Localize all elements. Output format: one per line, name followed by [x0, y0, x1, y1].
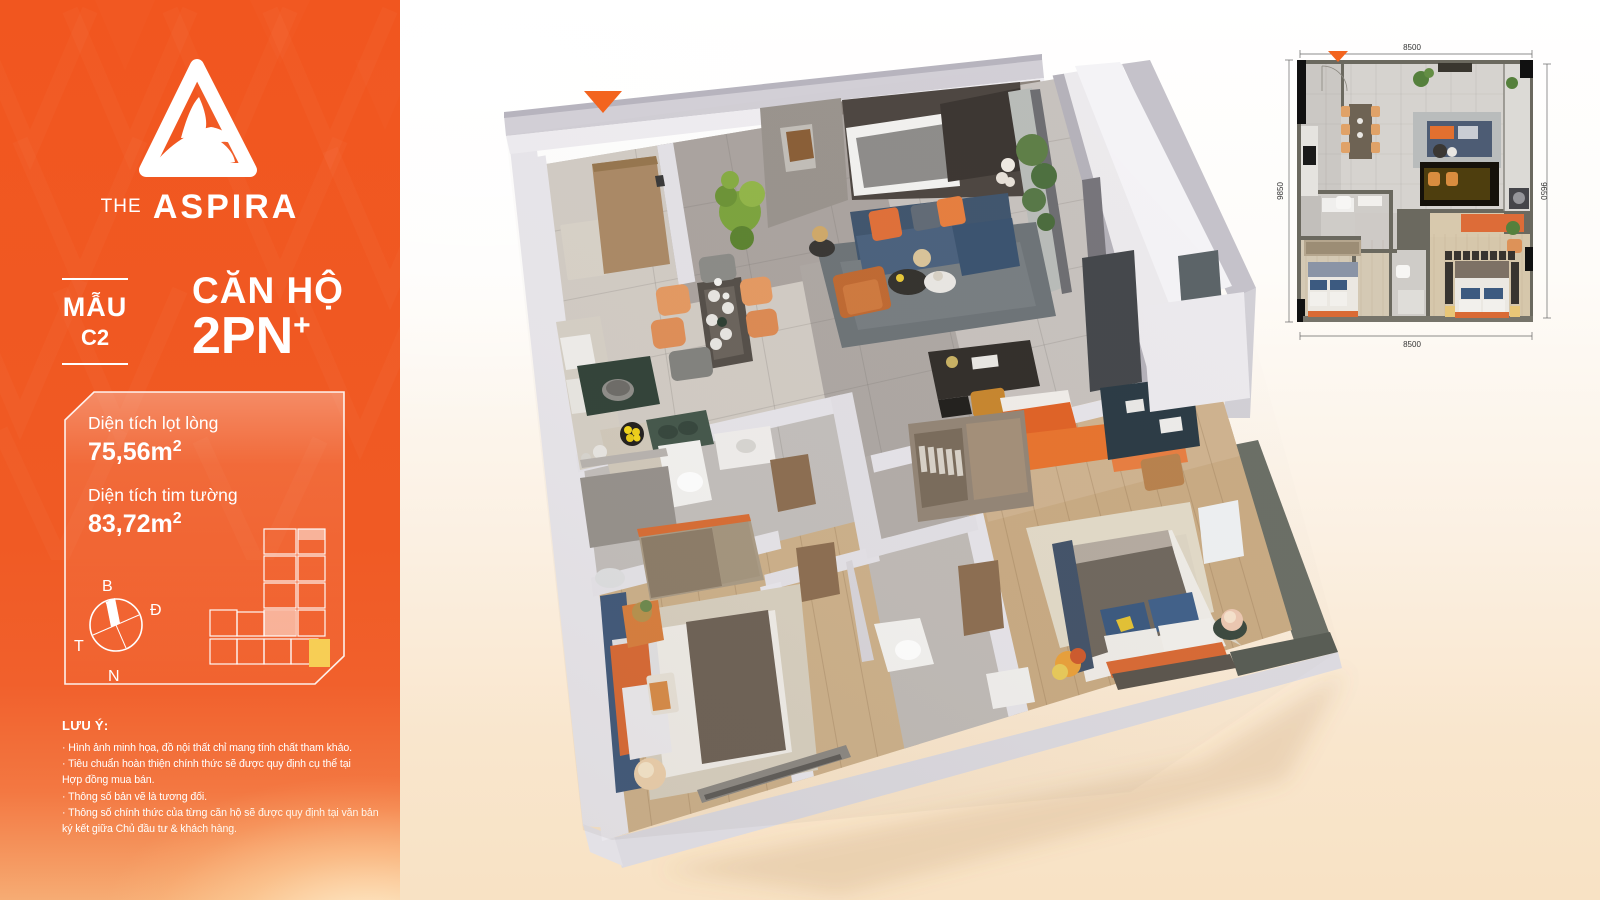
svg-text:8500: 8500	[1403, 340, 1421, 349]
svg-text:9850: 9850	[1276, 182, 1285, 200]
svg-text:8500: 8500	[1403, 43, 1421, 52]
svg-text:B: B	[102, 578, 113, 595]
svg-text:Đ: Đ	[150, 602, 162, 619]
svg-text:9650: 9650	[1539, 182, 1548, 200]
